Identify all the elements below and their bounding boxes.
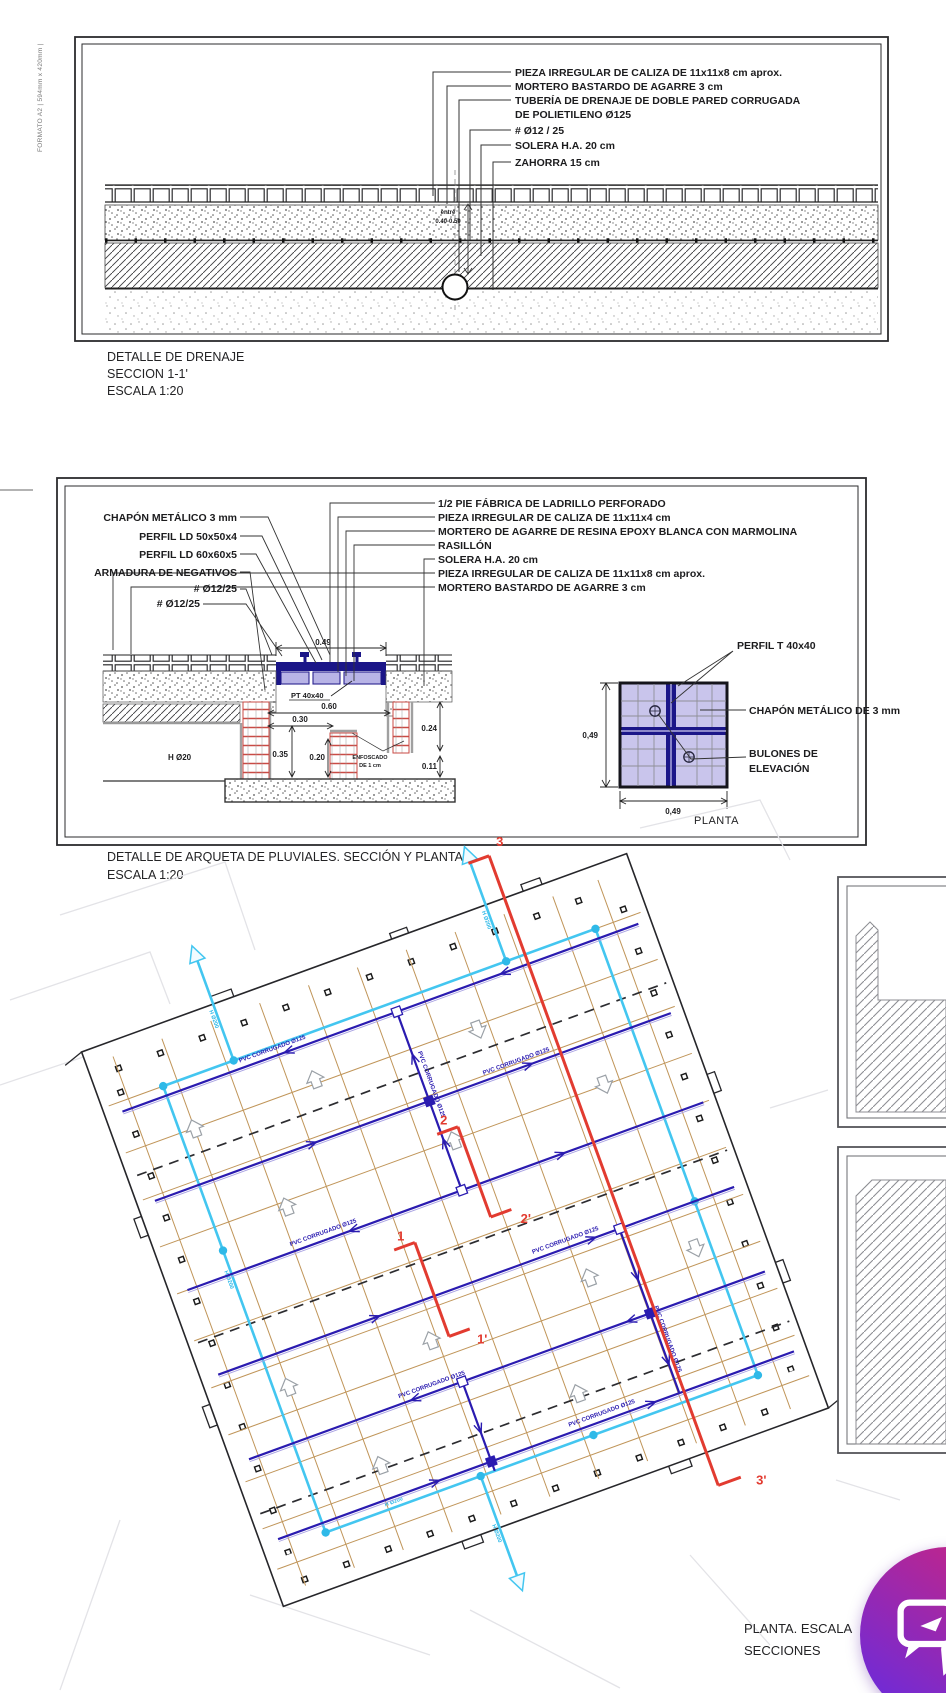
callout-mortero: MORTERO BASTARDO DE AGARRE 3 cm	[515, 81, 723, 93]
label-enfoscado-2: DE 1 cm	[359, 763, 381, 769]
marker-1p: 1'	[477, 1331, 487, 1346]
drain-pipe-circle	[443, 275, 468, 300]
label-perfil-t: PERFIL T 40x40	[737, 640, 816, 652]
label-chapon: CHAPÓN METÁLICO 3 mm	[103, 511, 237, 524]
label-bulones-1: BULONES DE	[749, 748, 818, 760]
marker-2p: 2'	[521, 1211, 531, 1226]
label-malla-2: # Ø12/25	[157, 598, 200, 610]
title-line-2: SECCION 1-1'	[107, 367, 188, 381]
label-mortero-bastardo: MORTERO BASTARDO DE AGARRE 3 cm	[438, 582, 646, 594]
side-section-box-b	[838, 1147, 946, 1453]
arqueta-detail-drawing: 0.49 0.60 0.30 0.35 0.20 0.24 0.11 H Ø20…	[57, 478, 900, 882]
callout-tuberia-l1: TUBERÍA DE DRENAJE DE DOBLE PARED CORRUG…	[515, 94, 801, 107]
label-ladrillo: 1/2 PIE FÁBRICA DE LADRILLO PERFORADO	[438, 497, 666, 510]
sheet-margin: FORMATO A2 | 594mm x 420mm |	[0, 43, 44, 490]
marker-1: 1	[397, 1228, 404, 1243]
title-line-1: DETALLE DE DRENAJE	[107, 350, 244, 364]
callout-zahorra: ZAHORRA 15 cm	[515, 157, 600, 169]
title-line-3: ESCALA 1:20	[107, 384, 183, 398]
plan-sheet: FORMATO A2 | 594mm x 420mm | entre 0.40-…	[0, 0, 946, 1693]
marker-3: 3	[496, 834, 503, 849]
dim-011: 0.11	[422, 762, 438, 771]
callout-solera: SOLERA H.A. 20 cm	[515, 140, 615, 152]
label-chapon-planta: CHAPÓN METÁLICO DE 3 mm	[749, 704, 900, 717]
plan-caption-2: SECCIONES	[744, 1643, 821, 1658]
callout-tuberia-l2: DE POLIETILENO Ø125	[515, 109, 631, 121]
marker-3p: 3'	[756, 1472, 766, 1487]
label-bulones-2: ELEVACIÓN	[749, 762, 809, 775]
dim-035: 0.35	[272, 750, 288, 759]
label-solera-2: SOLERA H.A. 20 cm	[438, 554, 538, 566]
label-malla-1: # Ø12/25	[194, 583, 237, 595]
title2-line-1: DETALLE DE ARQUETA DE PLUVIALES. SECCIÓN…	[107, 849, 466, 864]
label-enfoscado-1: ENFOSCADO	[352, 755, 388, 761]
label-armadura: ARMADURA DE NEGATIVOS	[94, 567, 237, 579]
plaza-outline	[82, 854, 829, 1607]
drainage-detail-drawing: entre 0.40-0.50 PIEZA IRREGULAR DE CALIZ…	[75, 37, 888, 398]
planta-dim-bottom: 0,49	[665, 807, 681, 816]
title2-line-2: ESCALA 1:20	[107, 868, 183, 882]
drawing1-title: DETALLE DE DRENAJE SECCION 1-1' ESCALA 1…	[107, 350, 244, 398]
planta-caption: PLANTA	[694, 815, 739, 827]
dim-060: 0.60	[321, 702, 337, 711]
dim-020: 0.20	[309, 753, 325, 762]
dim-030: 0.30	[292, 715, 308, 724]
label-caliza-11x11x8: PIEZA IRREGULAR DE CALIZA DE 11x11x8 cm …	[438, 568, 705, 580]
section-layers	[105, 170, 878, 333]
label-caliza-11x11x4: PIEZA IRREGULAR DE CALIZA DE 11x11x4 cm	[438, 512, 671, 524]
drawing2-title: DETALLE DE ARQUETA DE PLUVIALES. SECCIÓN…	[107, 849, 466, 882]
drawing-canvas: FORMATO A2 | 594mm x 420mm | entre 0.40-…	[0, 0, 946, 1693]
side-section-box-a	[838, 877, 946, 1127]
label-resina-epoxy: MORTERO DE AGARRE DE RESINA EPOXY BLANCA…	[438, 526, 798, 538]
label-perfil-ld60: PERFIL LD 60x60x5	[139, 549, 237, 561]
callout-pieza-caliza: PIEZA IRREGULAR DE CALIZA DE 11x11x8 cm …	[515, 67, 782, 79]
planta-dim-side: 0,49	[582, 731, 598, 740]
label-h-d20: H Ø20	[168, 753, 192, 762]
chat-bubble-icon	[888, 1590, 946, 1680]
plan-caption: PLANTA. ESCALA SECCIONES	[744, 1621, 852, 1658]
format-label: FORMATO A2 | 594mm x 420mm |	[37, 43, 44, 152]
plaza-plan: H Ø200 H Ø200 H Ø200 H Ø200 H Ø200 PVC C…	[41, 787, 870, 1676]
dim-entre: entre	[441, 210, 456, 216]
plan-caption-1: PLANTA. ESCALA	[744, 1621, 852, 1636]
label-rasillon: RASILLÓN	[438, 539, 492, 552]
callout-malla: # Ø12 / 25	[515, 125, 564, 137]
label-pt-40x40: PT 40x40	[291, 691, 324, 700]
marker-2: 2	[440, 1113, 447, 1128]
label-perfil-ld50: PERFIL LD 50x50x4	[139, 531, 237, 543]
dim-040-050: 0.40-0.50	[435, 219, 461, 225]
dim-024: 0.24	[421, 724, 437, 733]
